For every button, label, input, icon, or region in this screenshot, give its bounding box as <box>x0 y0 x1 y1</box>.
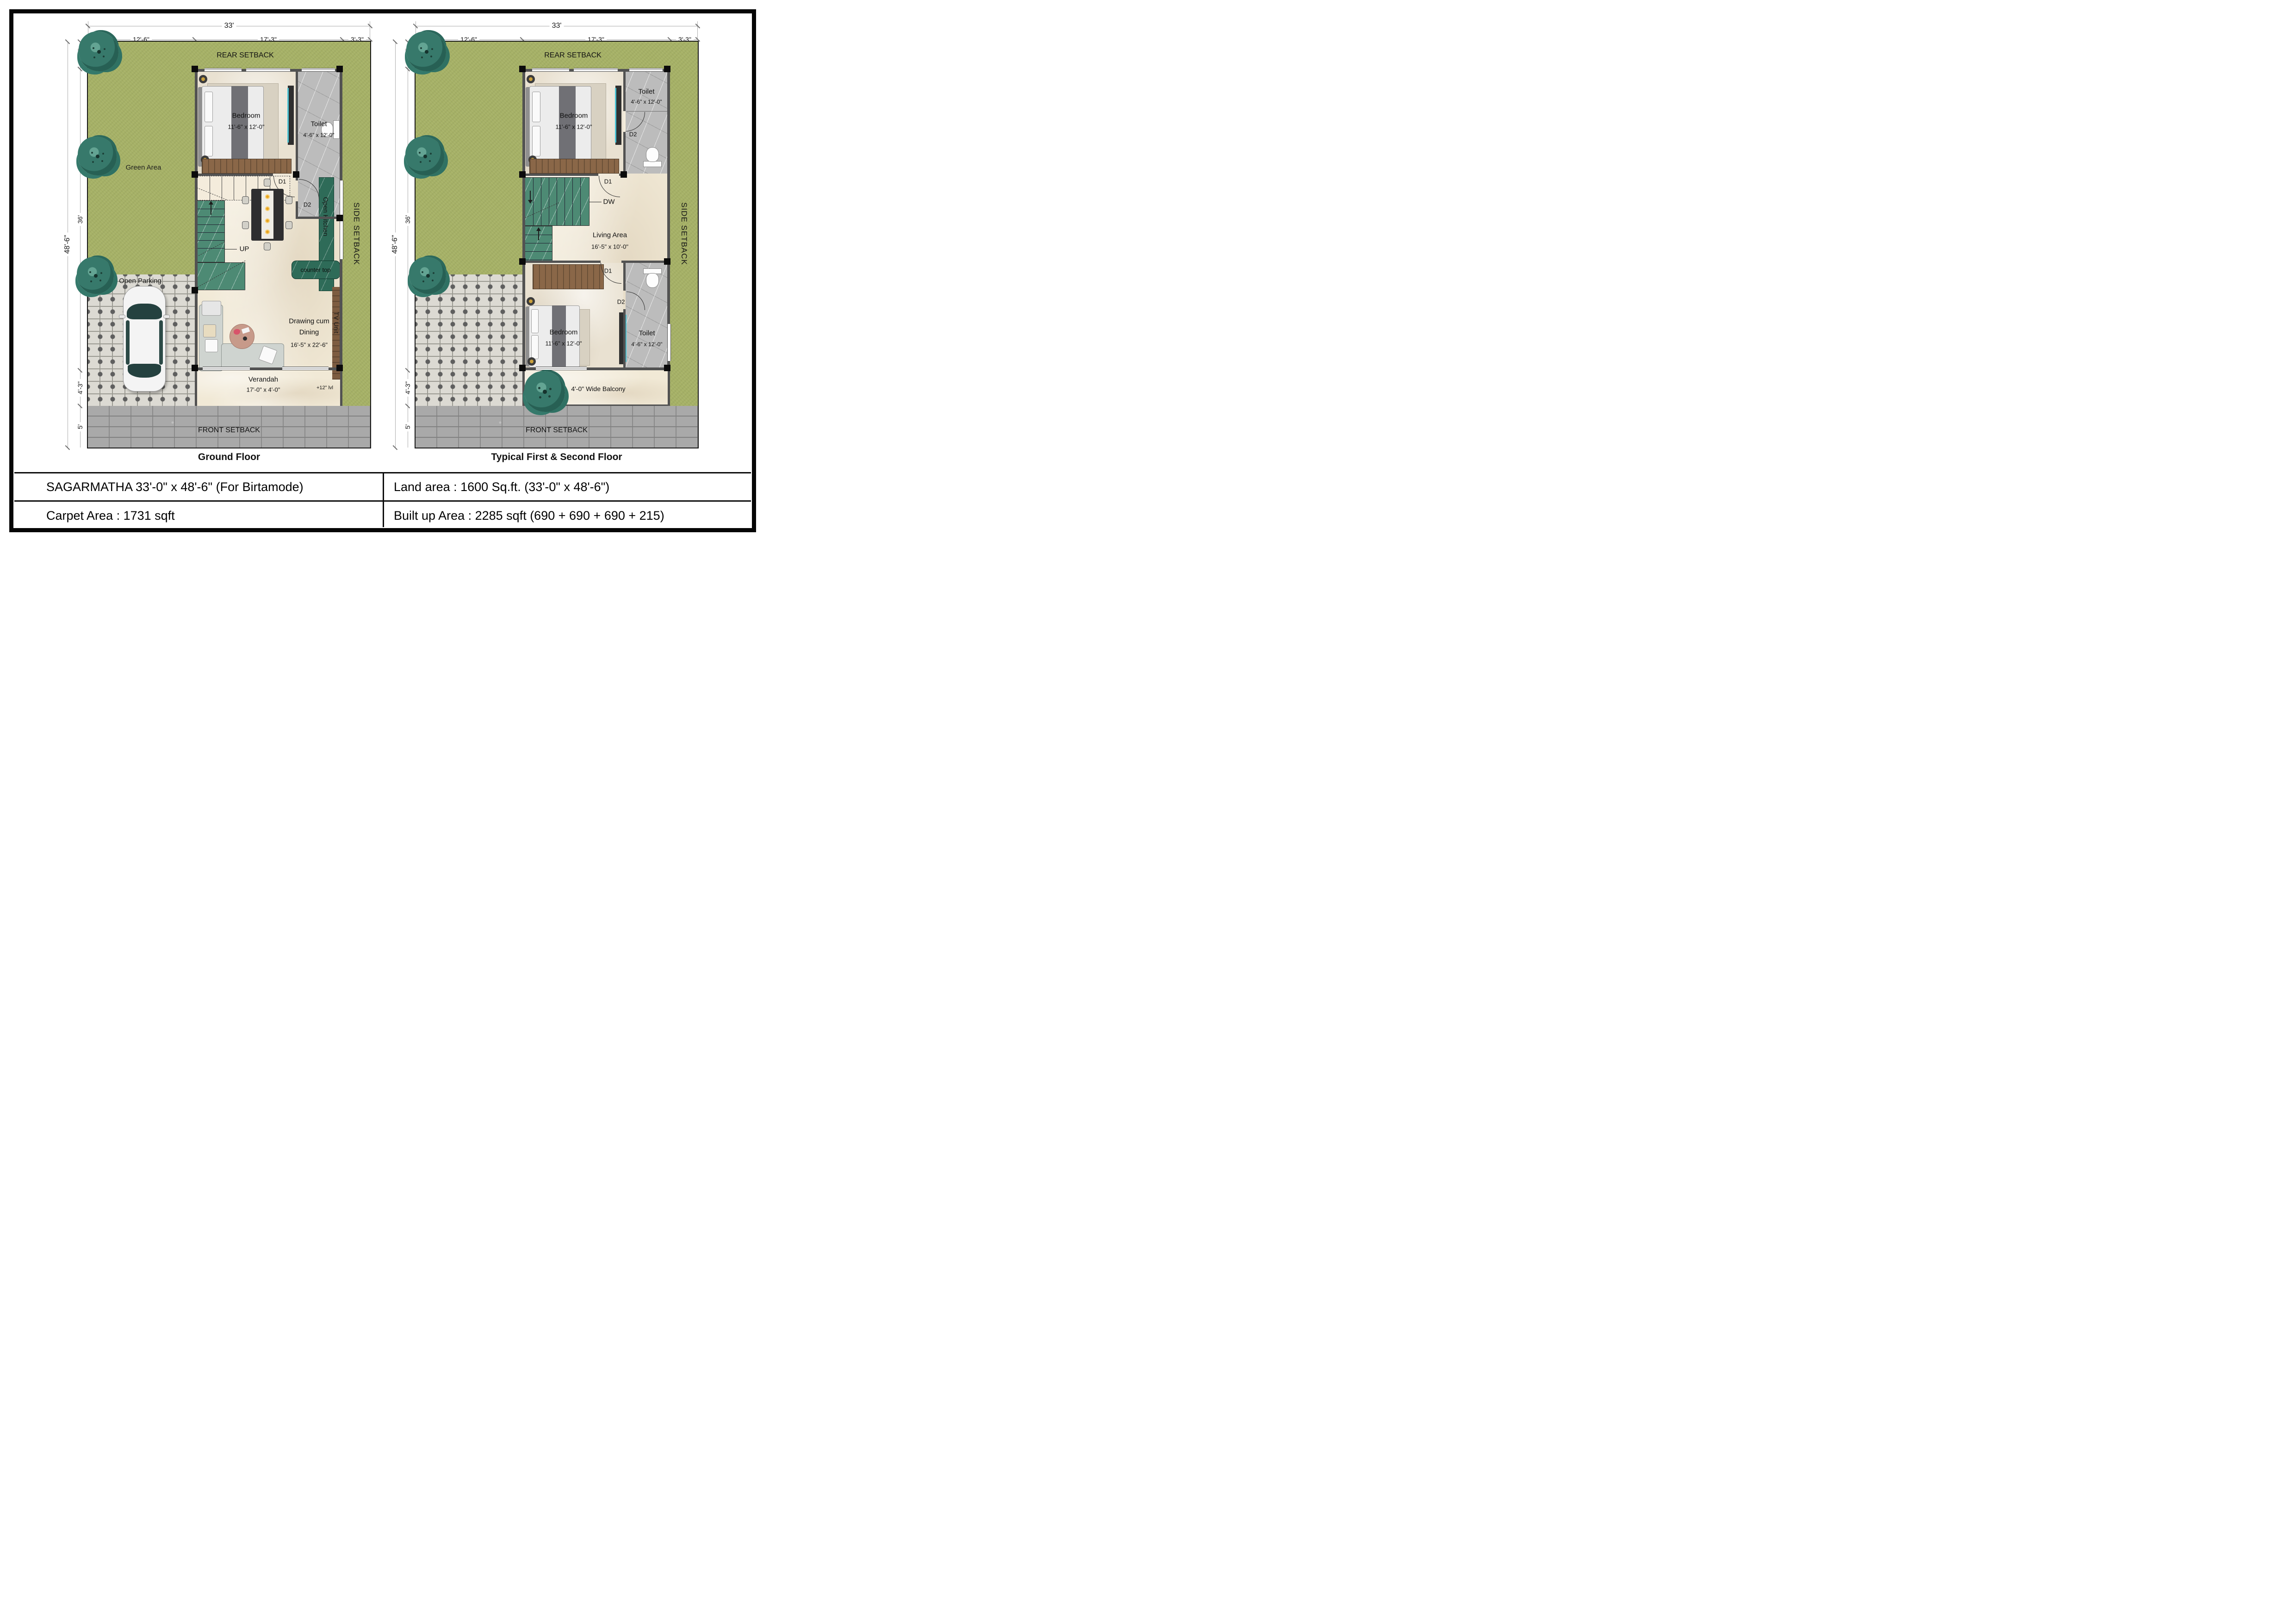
window <box>282 367 329 370</box>
drawing-dining-label-2: Dining <box>299 329 319 336</box>
title-block-divider-horizontal <box>14 500 751 502</box>
bedroom-size: 11'-6" x 12'-0" <box>228 124 265 131</box>
bedroom-bottom-label: Bedroom <box>550 329 578 336</box>
project-title: SAGARMATHA 33'-0" x 48'-6" (For Birtamod… <box>46 480 304 494</box>
dim-l-4-3: 4'-3" <box>76 379 84 397</box>
window <box>205 68 242 72</box>
bedroom-bottom-size: 11'-6" x 12'-0" <box>546 340 582 347</box>
counter-top-label: counter top <box>300 267 330 274</box>
living-area-label: Living Area <box>593 231 627 239</box>
dim-l-36: 36' <box>404 213 411 226</box>
pillow <box>205 126 213 156</box>
living-area-size: 16'-5" x 10'-0" <box>591 243 628 250</box>
drawing-dining-size: 16'-5" x 22'-6" <box>291 342 328 348</box>
verandah-level: +12" lvl <box>316 385 333 391</box>
car-side-glass <box>159 320 163 365</box>
wardrobe <box>202 159 292 174</box>
tv-unit-label: TV Unit <box>333 312 340 334</box>
window <box>667 324 671 361</box>
window <box>536 367 587 370</box>
verandah-size: 17'-0" x 4'-0" <box>247 386 280 393</box>
pillow <box>532 92 540 122</box>
bedroom-top-size: 11'-6" x 12'-0" <box>556 124 592 131</box>
bedside-lamp <box>527 297 535 305</box>
bedside-lamp <box>527 75 535 83</box>
dim-48-6: 48'-6" <box>63 233 72 256</box>
dim-l-4-3: 4'-3" <box>404 379 411 397</box>
door-d2-label: D2 <box>304 201 311 208</box>
front-setback-label: FRONT SETBACK <box>198 426 260 435</box>
toilet-bottom-label: Toilet <box>639 330 655 337</box>
dim-48-6: 48'-6" <box>391 233 399 256</box>
title-block: SAGARMATHA 33'-0" x 48'-6" (For Birtamod… <box>14 472 751 527</box>
dining-table <box>251 189 284 241</box>
stairs-up-label: UP <box>240 245 249 253</box>
door-d1-label: D1 <box>604 268 612 274</box>
verandah-label: Verandah <box>248 376 278 384</box>
tree <box>77 257 114 294</box>
pillow <box>531 335 539 359</box>
car-mirror <box>119 315 125 318</box>
tree <box>405 137 444 175</box>
rear-setback-label: REAR SETBACK <box>217 51 274 60</box>
toilet-partition-line <box>627 111 668 112</box>
side-setback-label: SIDE SETBACK <box>679 202 689 265</box>
tree <box>79 31 118 71</box>
tv-glass-line <box>615 88 616 143</box>
door-d1-label: D1 <box>604 178 612 185</box>
bedside-lamp <box>527 357 536 366</box>
typical-floor-plan: DW UP Living Area 16'-5" x 10'-0" <box>416 42 698 448</box>
open-parking-label: Open Parking <box>119 277 161 285</box>
dim-33ft: 33' <box>222 22 236 30</box>
dim-l-5: 5' <box>76 422 84 431</box>
bedroom-top-label: Bedroom <box>560 112 588 120</box>
toilet-bottom-size: 4'-6" x 12'-0" <box>631 341 662 348</box>
window <box>302 68 335 72</box>
typical-floor-caption: Typical First & Second Floor <box>491 452 622 463</box>
land-area: Land area : 1600 Sq.ft. (33'-0" x 48'-6"… <box>394 480 609 494</box>
car <box>123 286 166 392</box>
coffee-table <box>230 324 254 349</box>
tree <box>406 31 446 71</box>
dining-chair <box>242 221 249 229</box>
toilet-label: Toilet <box>310 120 327 128</box>
window <box>574 68 618 72</box>
floor-plan-sheet: 33' 12'-6" 17'-3" 3'-3" 48'-6" 3'-3" 36'… <box>0 0 765 541</box>
balcony-label: 4'-0" Wide Balcony <box>571 385 625 392</box>
bedroom-label: Bedroom <box>232 112 261 120</box>
dim-l-5: 5' <box>404 422 411 431</box>
dining-chair <box>285 196 292 204</box>
green-area-label: Green Area <box>126 164 161 172</box>
window <box>246 68 290 72</box>
ground-floor-plan: UP counter top Open Kitchen <box>88 42 370 448</box>
wardrobe <box>529 159 619 174</box>
built-up-area: Built up Area : 2285 sqft (690 + 690 + 6… <box>394 509 664 523</box>
door-d2-label: D2 <box>617 299 625 305</box>
toilet-size: 4'-6" x 12'-0" <box>303 132 334 138</box>
door-d2-label: D2 <box>629 131 637 138</box>
wardrobe <box>533 264 604 289</box>
tree <box>409 257 446 294</box>
toilet-top-size: 4'-6" x 12'-0" <box>631 99 662 105</box>
stairs-dw-label: DW <box>603 198 615 206</box>
drawing-dining-label-1: Drawing cum <box>289 317 329 325</box>
sofa-blanket <box>202 301 221 316</box>
stair-upper-flight <box>525 177 590 226</box>
stair-landing <box>197 262 245 290</box>
tv-glass-line <box>287 88 289 143</box>
dining-chair <box>242 196 249 204</box>
car-side-glass <box>126 320 130 365</box>
window <box>203 367 250 370</box>
pillow <box>531 309 539 333</box>
carpet-area: Carpet Area : 1731 sqft <box>46 509 175 523</box>
dining-chair <box>264 243 271 250</box>
tree <box>78 137 117 175</box>
window <box>629 68 663 72</box>
balcony-tree <box>524 371 565 412</box>
car-mirror <box>163 315 170 318</box>
car-windshield <box>127 304 162 319</box>
dim-l-36: 36' <box>76 213 84 226</box>
paved-area <box>416 274 522 406</box>
dining-chair <box>285 221 292 229</box>
stair-lower-flight <box>197 200 225 262</box>
tv-panel <box>288 86 294 145</box>
tv-panel <box>615 86 621 145</box>
front-setback-label: FRONT SETBACK <box>526 426 588 435</box>
pillow <box>532 126 540 156</box>
rear-setback-label: REAR SETBACK <box>544 51 602 60</box>
bedside-lamp <box>199 75 207 83</box>
ground-floor-caption: Ground Floor <box>198 452 260 463</box>
wc-bowl <box>646 147 659 162</box>
wc-bowl <box>646 273 659 288</box>
toilet-top-label: Toilet <box>638 88 654 96</box>
pillow <box>205 92 213 122</box>
dining-chair <box>264 179 271 187</box>
car-rear-window <box>128 364 161 378</box>
side-setback-label: SIDE SETBACK <box>352 202 361 265</box>
window <box>532 68 569 72</box>
dim-33ft: 33' <box>550 22 564 30</box>
door-d1-label: D1 <box>279 178 286 185</box>
